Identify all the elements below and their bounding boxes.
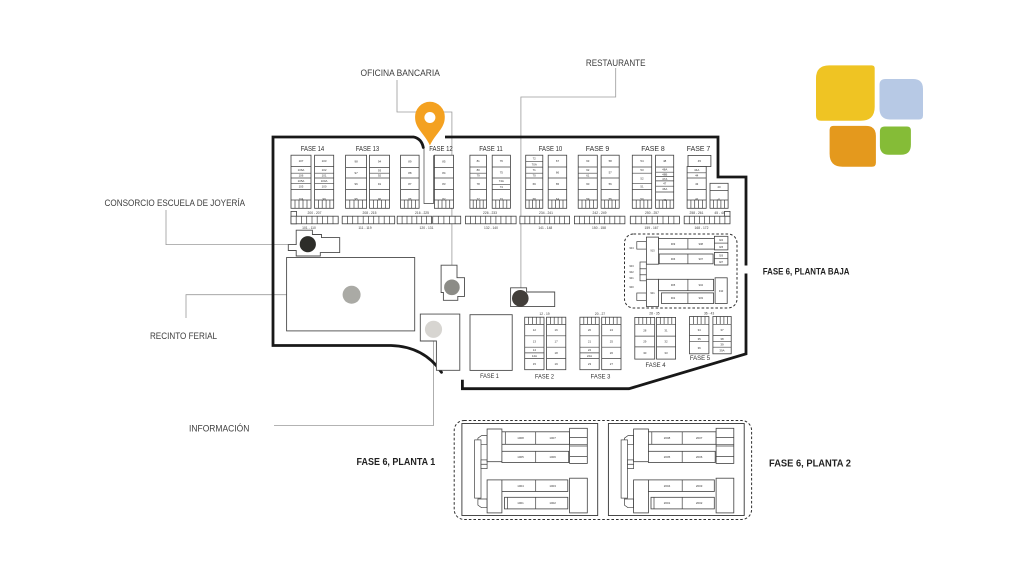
svg-text:216 - 225: 216 - 225 [415,211,429,215]
svg-text:36: 36 [698,346,702,350]
svg-text:FASE 6, PLANTA 1: FASE 6, PLANTA 1 [357,457,436,468]
svg-text:901: 901 [629,276,634,280]
svg-text:FASE 5: FASE 5 [690,355,711,362]
svg-text:242 - 249: 242 - 249 [593,211,607,215]
svg-text:925: 925 [719,246,724,249]
svg-text:INFORMACIÓN: INFORMACIÓN [189,423,249,433]
svg-text:46A: 46A [662,187,667,191]
svg-text:1007: 1007 [549,436,556,440]
svg-text:43: 43 [695,182,699,186]
svg-text:28 - 35: 28 - 35 [649,312,659,316]
svg-text:56: 56 [609,182,613,186]
svg-text:902: 902 [671,296,676,300]
svg-text:106: 106 [299,174,304,178]
svg-text:70: 70 [533,174,537,178]
svg-text:78: 78 [477,182,481,186]
svg-text:22: 22 [588,348,592,352]
svg-text:44: 44 [695,174,699,178]
svg-text:FASE 1: FASE 1 [480,373,499,380]
svg-text:100: 100 [322,185,327,189]
svg-text:76: 76 [500,159,504,163]
svg-text:906: 906 [671,257,676,261]
svg-text:908: 908 [699,242,704,246]
svg-text:47A: 47A [662,177,667,181]
svg-text:54: 54 [640,159,644,163]
svg-text:20: 20 [588,328,592,332]
svg-text:88: 88 [408,171,412,175]
svg-text:907: 907 [699,257,704,261]
svg-text:59: 59 [586,197,590,201]
svg-text:200 - 207: 200 - 207 [308,211,322,215]
svg-text:90: 90 [378,197,382,201]
svg-text:1001: 1001 [517,501,524,505]
svg-text:34: 34 [698,328,702,332]
svg-text:83: 83 [442,182,446,186]
svg-text:101 - 110: 101 - 110 [302,226,316,230]
svg-text:111 - 119: 111 - 119 [358,226,371,230]
svg-text:FASE 7: FASE 7 [687,146,711,153]
svg-text:19: 19 [554,362,558,366]
svg-text:168 - 172: 168 - 172 [695,226,709,230]
svg-text:FASE 10: FASE 10 [539,146,563,153]
svg-text:FASE 6, PLANTA BAJA: FASE 6, PLANTA BAJA [763,266,850,276]
svg-text:58: 58 [609,159,613,163]
svg-text:101: 101 [322,174,327,178]
svg-text:40: 40 [717,185,721,189]
svg-text:FASE 12: FASE 12 [429,146,453,153]
svg-text:16: 16 [554,328,558,332]
svg-text:14: 14 [533,348,537,352]
svg-text:95: 95 [354,197,358,201]
svg-text:45 - 44: 45 - 44 [714,211,724,215]
svg-text:84: 84 [442,171,446,175]
svg-text:99: 99 [322,197,326,201]
svg-text:15: 15 [533,362,537,366]
svg-text:14A: 14A [532,354,537,358]
svg-text:91: 91 [378,182,382,186]
svg-text:61: 61 [586,174,590,178]
svg-text:2002: 2002 [696,501,703,505]
svg-text:226 - 233: 226 - 233 [483,211,497,215]
svg-text:25: 25 [610,340,614,344]
svg-text:70A: 70A [532,163,537,167]
svg-text:97: 97 [354,171,358,175]
svg-text:234 - 241: 234 - 241 [539,211,553,215]
svg-text:FASE 3: FASE 3 [591,373,611,380]
svg-text:2001: 2001 [664,501,671,505]
svg-text:924: 924 [719,239,724,242]
svg-text:28: 28 [643,328,647,332]
svg-text:902: 902 [629,270,634,274]
svg-text:50: 50 [640,197,644,201]
svg-text:2006: 2006 [696,455,703,459]
svg-text:32: 32 [664,340,668,344]
svg-text:29: 29 [643,340,647,344]
svg-text:150 - 158: 150 - 158 [592,226,606,230]
svg-text:63: 63 [586,159,590,163]
svg-text:18: 18 [554,351,558,355]
svg-text:92: 92 [378,174,382,178]
svg-text:27: 27 [610,362,614,366]
svg-text:901: 901 [650,291,655,295]
svg-text:909: 909 [671,242,676,246]
svg-text:FASE 4: FASE 4 [646,362,666,369]
svg-text:21: 21 [588,340,592,344]
svg-text:105A: 105A [298,179,305,183]
svg-text:80: 80 [477,168,481,172]
svg-text:100A: 100A [321,179,328,183]
svg-text:1003: 1003 [549,484,556,488]
svg-text:81: 81 [477,159,481,163]
svg-text:33: 33 [664,351,668,355]
svg-text:36 - 43: 36 - 43 [704,312,714,316]
svg-text:1004: 1004 [517,484,524,488]
svg-text:71: 71 [533,168,537,172]
svg-text:42: 42 [695,197,699,201]
svg-text:79: 79 [477,174,481,178]
svg-text:94: 94 [378,159,382,163]
svg-text:62: 62 [586,168,590,172]
svg-text:39A: 39A [719,349,724,353]
svg-text:FASE 13: FASE 13 [356,146,380,153]
svg-text:72: 72 [533,157,537,161]
svg-text:904: 904 [699,283,704,287]
svg-text:12 - 19: 12 - 19 [539,312,549,316]
svg-text:69: 69 [533,182,537,186]
svg-text:96: 96 [354,182,358,186]
svg-text:30: 30 [643,351,647,355]
svg-text:65: 65 [556,182,560,186]
svg-text:47: 47 [663,182,667,186]
svg-text:39: 39 [720,343,724,347]
svg-text:38: 38 [720,337,724,341]
svg-text:2008: 2008 [664,436,671,440]
svg-text:75: 75 [500,171,504,175]
svg-text:102: 102 [322,168,327,172]
svg-text:904: 904 [629,246,634,250]
svg-text:120 - 131: 120 - 131 [420,226,434,230]
svg-text:926: 926 [719,255,724,258]
svg-text:FASE 14: FASE 14 [301,146,325,153]
svg-text:2007: 2007 [696,436,703,440]
svg-text:208 - 215: 208 - 215 [363,211,377,215]
svg-text:66: 66 [556,171,560,175]
svg-text:1008: 1008 [517,436,524,440]
svg-text:105: 105 [299,185,304,189]
svg-text:103: 103 [322,159,327,163]
svg-text:905: 905 [671,283,676,287]
svg-text:2004: 2004 [664,484,671,488]
svg-text:53: 53 [640,168,644,172]
svg-text:FASE 11: FASE 11 [479,146,503,153]
svg-text:93: 93 [378,168,382,172]
svg-text:927: 927 [719,261,724,264]
svg-text:FASE 9: FASE 9 [586,146,610,153]
svg-text:67: 67 [556,159,560,163]
svg-text:44A: 44A [694,168,699,172]
svg-text:1005: 1005 [517,455,524,459]
svg-text:89: 89 [408,159,412,163]
svg-text:OFICINA BANCARIA: OFICINA BANCARIA [361,68,441,78]
svg-text:26: 26 [610,351,614,355]
svg-text:900: 900 [629,285,634,289]
svg-text:12: 12 [533,328,537,332]
svg-text:85: 85 [442,159,446,163]
svg-text:132 - 140: 132 - 140 [484,226,498,230]
svg-text:37: 37 [720,328,724,332]
svg-text:48A: 48A [662,168,667,172]
svg-text:107: 107 [299,159,304,163]
svg-text:87: 87 [408,182,412,186]
svg-text:915: 915 [650,249,655,253]
svg-text:13: 13 [533,340,537,344]
svg-text:258 - 261: 258 - 261 [690,211,704,215]
svg-text:60: 60 [586,182,590,186]
svg-text:RESTAURANTE: RESTAURANTE [586,58,646,68]
svg-text:2003: 2003 [696,484,703,488]
svg-text:20 - 27: 20 - 27 [595,312,605,316]
svg-text:74: 74 [500,185,504,189]
svg-text:41: 41 [717,198,721,202]
svg-text:17: 17 [554,340,558,344]
svg-text:82: 82 [442,197,446,201]
svg-text:FASE 2: FASE 2 [535,373,554,380]
svg-text:24: 24 [610,328,614,332]
svg-text:141 - 148: 141 - 148 [538,226,552,230]
svg-text:FASE 6, PLANTA 2: FASE 6, PLANTA 2 [769,458,851,469]
svg-text:45: 45 [698,159,702,163]
svg-text:23: 23 [588,362,592,366]
svg-text:CONSORCIO ESCUELA DE JOYERÍA: CONSORCIO ESCUELA DE JOYERÍA [105,198,246,208]
svg-text:1002: 1002 [549,501,556,505]
svg-text:31: 31 [664,328,668,332]
svg-text:FASE 8: FASE 8 [641,146,665,153]
svg-text:52: 52 [640,177,644,181]
svg-text:159 - 167: 159 - 167 [645,226,659,230]
svg-text:1006: 1006 [549,455,556,459]
svg-text:2005: 2005 [664,455,671,459]
svg-text:51: 51 [640,185,644,189]
svg-text:22A: 22A [587,354,592,358]
svg-text:98: 98 [354,159,358,163]
svg-text:903: 903 [629,264,634,268]
svg-text:35: 35 [698,337,702,341]
svg-text:910: 910 [719,289,724,293]
svg-text:48: 48 [663,159,667,163]
svg-text:250 - 257: 250 - 257 [645,211,659,215]
svg-text:106A: 106A [298,168,305,172]
svg-text:903: 903 [699,296,704,300]
svg-text:74A: 74A [499,179,504,183]
svg-text:57: 57 [609,171,613,175]
svg-text:RECINTO FERIAL: RECINTO FERIAL [150,331,217,341]
